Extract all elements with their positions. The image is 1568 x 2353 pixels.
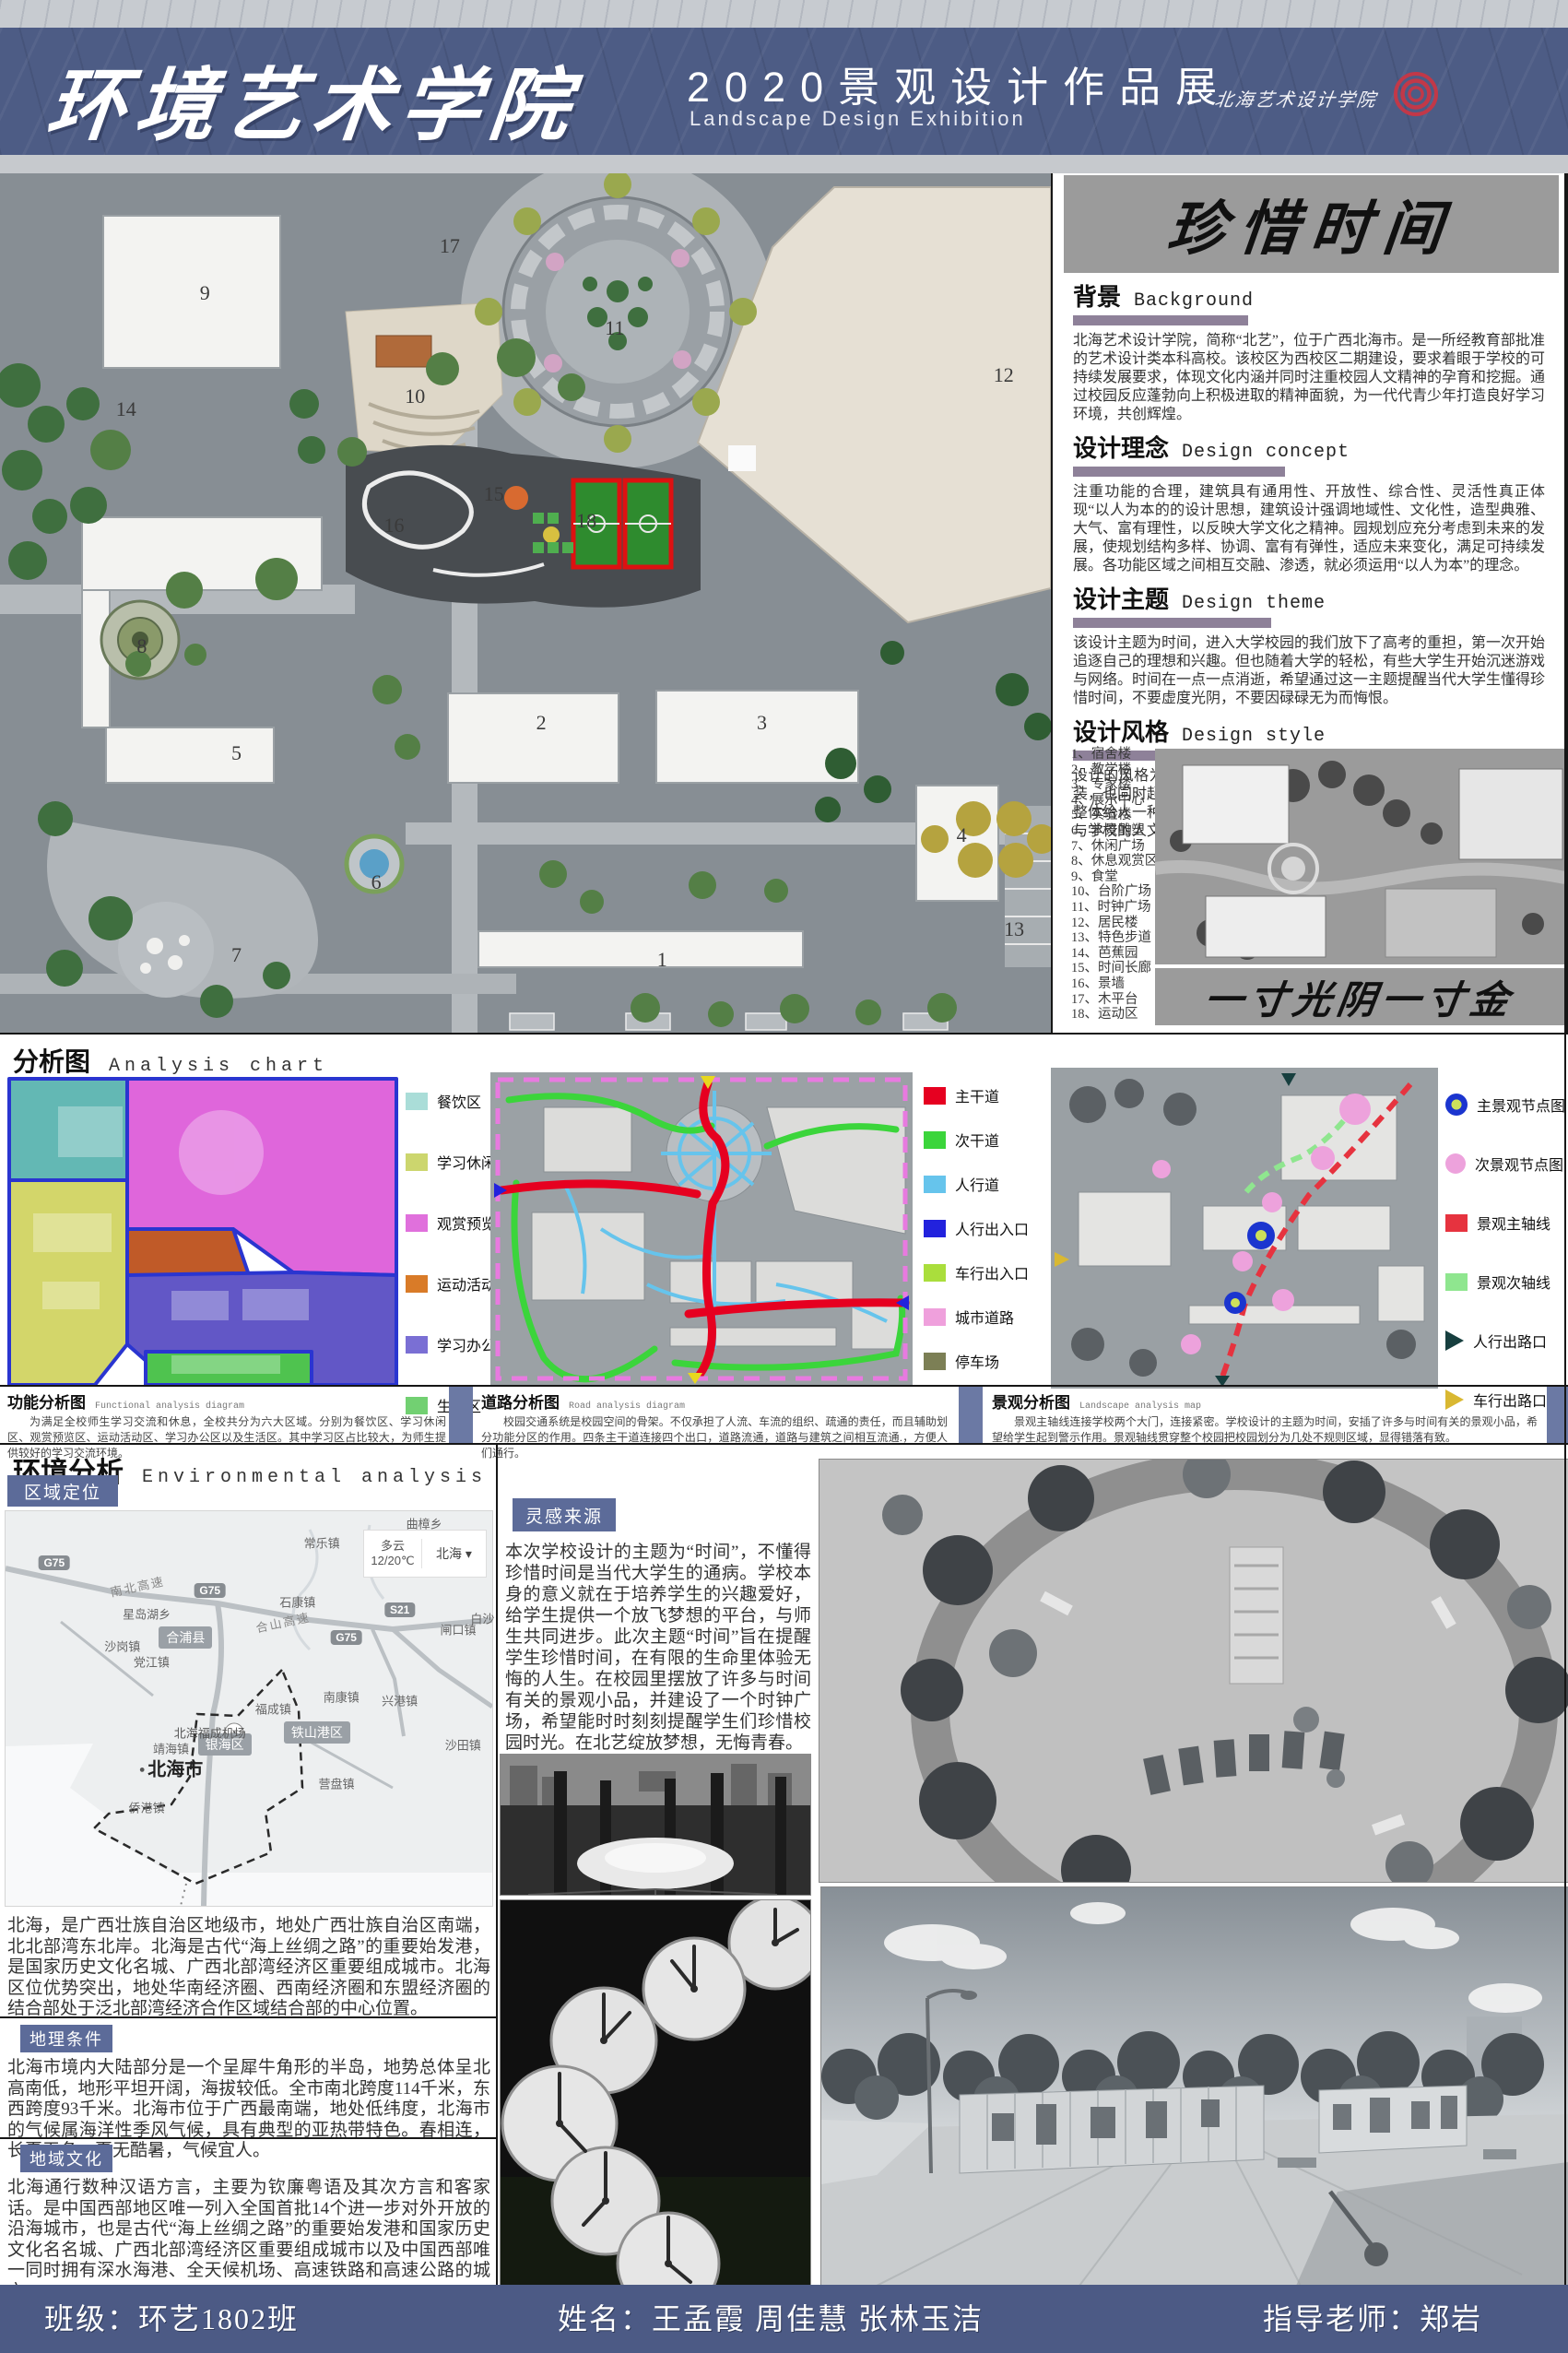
plan-number-label: 13 [1004, 917, 1024, 941]
section-heading: 设计风格 [1073, 714, 1169, 748]
caption-top-line [0, 1385, 1568, 1387]
weather-temp: 12/20℃ [364, 1554, 421, 1568]
culture-paragraph: 北海通行数种汉语方言，主要为钦廉粤语及其次方言和客家话。是中国西部地区唯一列入全… [7, 2178, 490, 2302]
map-place-label: 常乐镇 [304, 1534, 340, 1552]
legend-item: 停车场 [924, 1350, 1029, 1372]
section-underline-bar [1073, 467, 1285, 477]
map-place-label: S21 [384, 1602, 415, 1617]
legend-color-chip [1445, 1214, 1468, 1232]
column-vertical-line [496, 1443, 498, 2285]
label-text: 地理条件 [29, 2027, 103, 2051]
legend-color-chip [406, 1093, 428, 1110]
building-list-item: 1、宿舍楼 [1071, 747, 1156, 763]
clock-row-photo [500, 1899, 811, 2287]
college-title: 环境艺术学院 [41, 41, 584, 156]
analysis-header: 分析图 Analysis chart [13, 1042, 328, 1079]
column-divider-line [0, 2137, 496, 2139]
building-list-item: 10、台阶广场 [1071, 884, 1156, 900]
footer-bar: 班级：环艺1802班 姓名：王孟霞 周佳慧 张林玉洁 指导老师：郑岩 [0, 2285, 1568, 2353]
legend-item: 景观主轴线 [1445, 1212, 1565, 1234]
teacher-text: 指导老师：郑岩 [1263, 2285, 1482, 2353]
legend-label: 车行出入口 [955, 1261, 1029, 1283]
analysis-title: 分析图 [13, 1042, 90, 1079]
building-list-item: 7、休闲广场 [1071, 839, 1156, 855]
legend-color-chip [406, 1336, 428, 1354]
weather-condition: 多云 12/20℃ [364, 1539, 422, 1567]
plan-number-label: 15 [484, 482, 504, 506]
section-heading: 背景 [1073, 278, 1121, 313]
section-divider-line [0, 1033, 1568, 1035]
section-heading-en: Design style [1182, 726, 1326, 747]
building-list-item: 3、专家楼 [1071, 777, 1156, 793]
legend-item: 景观次轴线 [1445, 1271, 1565, 1293]
legend-label: 次景观节点图 [1475, 1153, 1563, 1175]
section-underline-bar [1073, 315, 1248, 325]
legend-color-chip [924, 1220, 946, 1237]
concept-panel: 珍惜时间 背景 Background 北海艺术设计学院，简称“北艺”，位于广西北… [1053, 173, 1568, 1033]
legend-item: 车行出入口 [924, 1261, 1029, 1283]
caption-body: 校园交通系统是校园空间的骨架。不仅承担了人流、车流的组织、疏通的责任，而且辅助划… [481, 1414, 948, 1460]
legend-label: 主干道 [955, 1084, 999, 1106]
building-list-item: 17、木平台 [1071, 992, 1156, 1008]
building-legend-list: 1、宿舍楼2、教学楼3、专家楼4、展示中心5、实验楼6、水景雕塑7、休闲广场8、… [1071, 747, 1156, 1023]
legend-label: 人行出路口 [1473, 1330, 1547, 1352]
caption-title-en: Road analysis diagram [569, 1401, 685, 1412]
clock-plaza-render-image [819, 1459, 1568, 1883]
plan-number-label: 6 [371, 870, 382, 894]
map-place-label: 党江镇 [134, 1652, 170, 1670]
legend-color-chip [924, 1264, 946, 1282]
legend-color-chip [1445, 1330, 1464, 1351]
map-place-label: G75 [38, 1555, 70, 1570]
caption-body: 景观主轴线连接学校两个大门，连接紧密。学校设计的主题为时间，安插了许多与时间有关… [992, 1414, 1538, 1446]
plan-number-label: 4 [957, 823, 967, 847]
map-place-label: 合山高速 [254, 1607, 312, 1636]
map-place-label: 南北高速 [108, 1572, 166, 1601]
legend-label: 停车场 [955, 1350, 999, 1372]
legend-color-chip [924, 1176, 946, 1193]
chevron-down-icon: ▾ [466, 1546, 472, 1561]
landscape-analysis-diagram [1051, 1068, 1438, 1389]
weather-widget: 多云 12/20℃ 北海 ▾ [363, 1530, 487, 1578]
header-divider-strip [0, 155, 1568, 173]
plan-number-label: 10 [405, 384, 425, 408]
legend-label: 城市道路 [955, 1306, 1014, 1328]
region-location-label: 区域定位 [7, 1475, 118, 1507]
plan-number-label: 17 [440, 234, 460, 258]
school-logo-icon [1394, 72, 1438, 116]
building-list-item: 2、教学楼 [1071, 763, 1156, 778]
plan-number-label: 18 [576, 509, 596, 533]
section-body: 注重功能的合理，建筑具有通用性、开放性、综合性、灵活性真正体现“以人为本的的设计… [1073, 483, 1545, 575]
caption-title: 道路分析图 [481, 1389, 560, 1413]
road-caption: 道路分析图 Road analysis diagram 校园交通系统是校园空间的… [481, 1389, 948, 1460]
legend-item: 人行道 [924, 1173, 1029, 1195]
map-place-label: 福成镇 [255, 1700, 291, 1718]
label-text: 灵感来源 [525, 1503, 603, 1528]
legend-color-chip [406, 1214, 428, 1232]
legend-item: 主干道 [924, 1084, 1029, 1106]
school-logo-text: 北海艺术设计学院 [1213, 85, 1379, 112]
landscape-caption: 景观分析图 Landscape analysis map 景观主轴线连接学校两个… [992, 1389, 1538, 1446]
legend-color-chip [406, 1153, 428, 1171]
caption-title-en: Functional analysis diagram [95, 1401, 244, 1412]
map-place-label: 兴港镇 [382, 1692, 418, 1709]
section-heading: 设计理念 [1073, 430, 1169, 464]
map-place-label: 石康镇 [279, 1593, 315, 1611]
building-list-item: 13、特色步道 [1071, 930, 1156, 946]
road-analysis-diagram [490, 1072, 913, 1386]
theme-title-box: 珍惜时间 [1064, 175, 1559, 273]
column-divider-line [0, 2016, 496, 2018]
exhibition-poster: 环境艺术学院 2020景观设计作品展 Landscape Design Exhi… [0, 0, 1568, 2353]
section-body: 北海艺术设计学院，简称“北艺”，位于广西北海市。是一所经教育部批准的艺术设计类本… [1073, 332, 1545, 424]
analysis-title-en: Analysis chart [109, 1056, 328, 1077]
map-airport-label: 北海福成机场 [174, 1723, 246, 1741]
plan-number-label: 12 [994, 363, 1014, 387]
plan-number-label: 8 [136, 634, 147, 658]
section-body: 该设计主题为时间，进入大学校园的我们放下了高考的重担，第一次开始追逐自己的理想和… [1073, 634, 1545, 708]
caption-title: 功能分析图 [7, 1389, 86, 1413]
legend-label: 主景观节点图 [1477, 1094, 1565, 1116]
building-list-item: 11、时钟广场 [1071, 900, 1156, 916]
building-list-item: 8、休息观赏区 [1071, 854, 1156, 869]
motto-text: 一寸光阴一寸金 [1201, 969, 1519, 1025]
map-place-label: 星岛湖乡 [123, 1605, 171, 1623]
exhibition-title: 2020景观设计作品展 [687, 53, 1232, 113]
caption-title-en: Landscape analysis map [1079, 1401, 1201, 1412]
legend-label: 人行道 [955, 1173, 999, 1195]
caption-title: 景观分析图 [992, 1389, 1070, 1413]
weather-city-dropdown[interactable]: 北海 ▾ [422, 1544, 486, 1563]
legend-color-chip [924, 1087, 946, 1105]
top-sketch-strip [0, 0, 1568, 28]
plan-number-label: 11 [605, 316, 624, 340]
legend-item: 人行出入口 [924, 1217, 1029, 1239]
grayscale-plan-image [1155, 749, 1565, 964]
legend-label: 景观主轴线 [1477, 1212, 1550, 1234]
legend-item: 城市道路 [924, 1306, 1029, 1328]
map-place-label: 沙田镇 [445, 1735, 481, 1753]
legend-item: 次景观节点图 [1445, 1153, 1565, 1175]
section-underline-bar [1073, 618, 1271, 628]
scenery-wall-render-image [820, 1886, 1568, 2287]
map-place-label: 合浦县 [159, 1626, 212, 1649]
plan-number-label: 3 [757, 711, 767, 735]
plan-number-label: 1 [657, 948, 667, 972]
inspiration-label: 灵感来源 [513, 1498, 616, 1531]
region-map: ✈ 曲樟乡常乐镇南北高速石康镇合山高速G75G75G75S21闸口镇白沙星岛湖乡… [5, 1510, 493, 1907]
legend-color-chip [1445, 1273, 1468, 1291]
road-legend: 主干道 次干道 人行道 人行出入口 车行出入口 城市道路 停车场 [924, 1084, 1029, 1372]
section-design-theme: 设计主题 Design theme 该设计主题为时间，进入大学校园的我们放下了高… [1073, 581, 1545, 708]
names-text: 姓名：王孟霞 周佳慧 张林玉洁 [558, 2285, 984, 2353]
legend-label: 人行出入口 [955, 1217, 1029, 1239]
plan-number-label: 7 [231, 943, 242, 967]
plan-number-label: 2 [536, 711, 547, 735]
legend-item: 主景观节点图 [1445, 1094, 1565, 1116]
building-list-item: 4、展示中心 [1071, 793, 1156, 809]
map-place-label: G75 [330, 1630, 362, 1645]
map-city-label: 北海市 [139, 1755, 203, 1781]
label-text: 地域文化 [29, 2146, 103, 2170]
legend-label: 景观次轴线 [1477, 1271, 1550, 1293]
section-background: 背景 Background 北海艺术设计学院，简称“北艺”，位于广西北海市。是一… [1073, 278, 1545, 424]
building-list-item: 12、居民楼 [1071, 916, 1156, 931]
legend-color-chip [924, 1131, 946, 1149]
building-list-item: 9、食堂 [1071, 869, 1156, 885]
inspiration-paragraph: 本次学校设计的主题为“时间”，不懂得珍惜时间是当代大学生的通病。学校本身的意义就… [505, 1542, 811, 1754]
plan-number-label: 14 [116, 397, 136, 421]
map-place-label: 侨港镇 [129, 1799, 165, 1816]
building-list-item: 18、运动区 [1071, 1007, 1156, 1023]
theme-title: 珍惜时间 [1163, 182, 1460, 266]
city-intro-paragraph: 北海，是广西壮族自治区地级市，地处广西壮族自治区南端，北北部湾东北岸。北海是古代… [7, 1916, 490, 2020]
label-text: 区域定位 [24, 1479, 101, 1504]
exhibition-title-en: Landscape Design Exhibition [690, 107, 1026, 131]
map-place-label: 营盘镇 [319, 1775, 355, 1792]
legend-item: 人行出路口 [1445, 1330, 1565, 1352]
plan-number-layer: 123456789101112131415161718 [0, 173, 1051, 1033]
weather-city-name: 北海 [436, 1546, 462, 1561]
legend-color-chip [406, 1275, 428, 1293]
section-heading-en: Design theme [1182, 593, 1326, 614]
caption-divider-block [959, 1387, 983, 1443]
legend-color-chip [1445, 1153, 1466, 1174]
environment-title-en: Environmental analysis [142, 1467, 487, 1488]
campus-masterplan: 123456789101112131415161718 [0, 173, 1053, 1033]
clock-plaza-fisheye-photo [500, 1754, 811, 1896]
landscape-legend: 主景观节点图 次景观节点图 景观主轴线 景观次轴线 人行出路口 车行出路口 [1445, 1094, 1565, 1411]
building-list-item: 5、实验楼 [1071, 808, 1156, 823]
section-heading: 设计主题 [1073, 581, 1169, 615]
map-place-label: 铁山港区 [284, 1721, 350, 1744]
caption-divider-block [449, 1387, 473, 1443]
legend-color-chip [924, 1353, 946, 1370]
legend-item: 次干道 [924, 1129, 1029, 1151]
plan-number-label: 16 [384, 514, 405, 538]
section-heading-en: Design concept [1182, 442, 1350, 463]
motto-banner: 一寸光阴一寸金 [1155, 968, 1565, 1025]
class-text: 班级：环艺1802班 [44, 2285, 299, 2353]
map-place-label: 南康镇 [324, 1688, 360, 1706]
map-place-label: 白沙 [470, 1609, 494, 1626]
section-heading-en: Background [1134, 290, 1254, 312]
legend-label: 次干道 [955, 1129, 999, 1151]
weather-text: 多云 [364, 1539, 421, 1554]
map-place-label: G75 [194, 1583, 226, 1598]
legend-label: 餐饮区 [437, 1090, 481, 1112]
legend-color-chip [924, 1308, 946, 1326]
building-list-item: 16、景墙 [1071, 976, 1156, 992]
geography-label: 地理条件 [20, 2025, 112, 2052]
culture-label: 地域文化 [20, 2145, 112, 2172]
header-banner: 环境艺术学院 2020景观设计作品展 Landscape Design Exhi… [0, 28, 1568, 155]
building-list-item: 14、芭蕉园 [1071, 946, 1156, 962]
page-edge-line [1564, 173, 1566, 2285]
caption-bottom-line [0, 1443, 1568, 1445]
legend-color-chip [1445, 1094, 1468, 1116]
section-design-concept: 设计理念 Design concept 注重功能的合理，建筑具有通用性、开放性、… [1073, 430, 1545, 575]
plan-number-label: 9 [200, 281, 210, 305]
building-list-item: 15、时间长廊 [1071, 961, 1156, 976]
building-list-item: 6、水景雕塑 [1071, 823, 1156, 839]
plan-number-label: 5 [231, 741, 242, 765]
functional-zoning-diagram [7, 1077, 398, 1385]
